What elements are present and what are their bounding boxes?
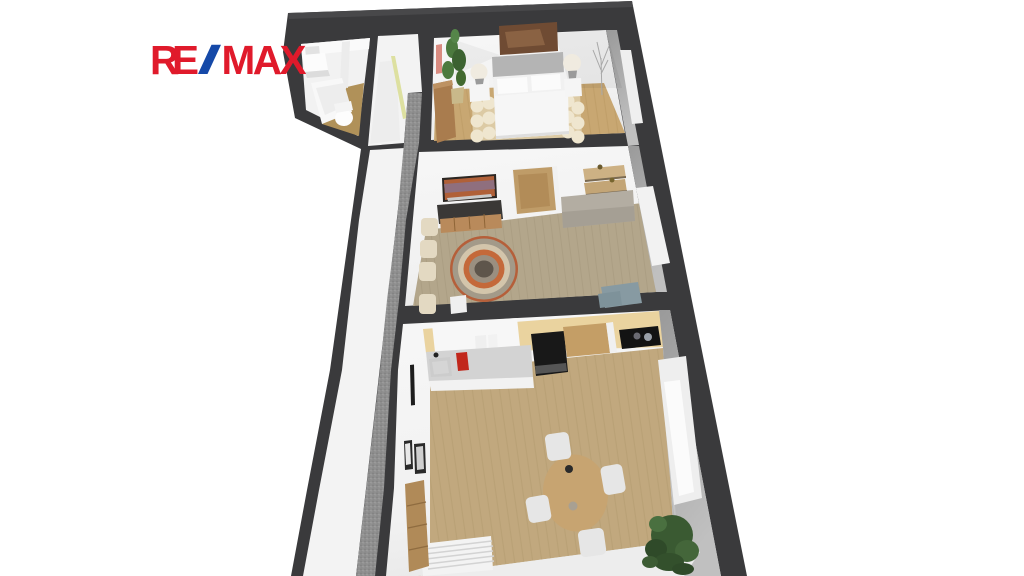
- svg-text:RE: RE: [150, 37, 199, 83]
- svg-text:MAX: MAX: [222, 37, 307, 83]
